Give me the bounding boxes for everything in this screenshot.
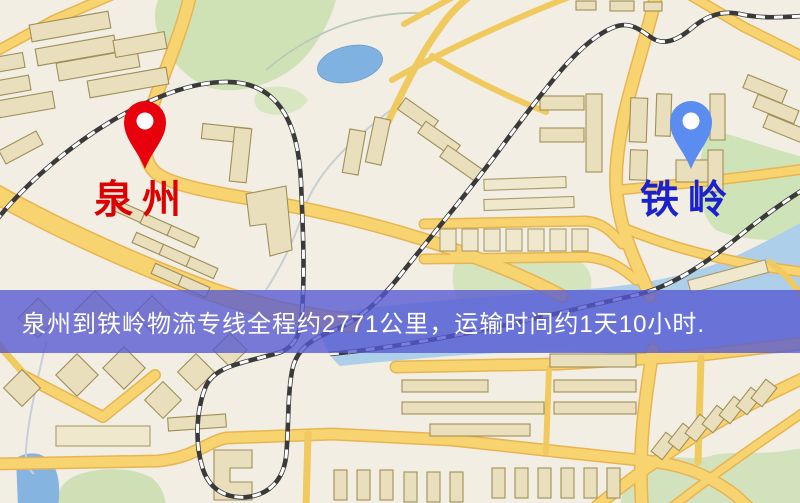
route-summary-text: 泉州到铁岭物流专线全程约2771公里，运输时间约1天10小时. <box>22 304 705 339</box>
route-summary-banner: 泉州到铁岭物流专线全程约2771公里，运输时间约1天10小时. <box>0 290 800 353</box>
map-canvas <box>0 0 800 503</box>
route-map: 泉州 铁岭 泉州到铁岭物流专线全程约2771公里，运输时间约1天10小时. <box>0 0 800 503</box>
destination-city-label: 铁岭 <box>640 181 736 220</box>
origin-city-label: 泉州 <box>94 181 190 220</box>
